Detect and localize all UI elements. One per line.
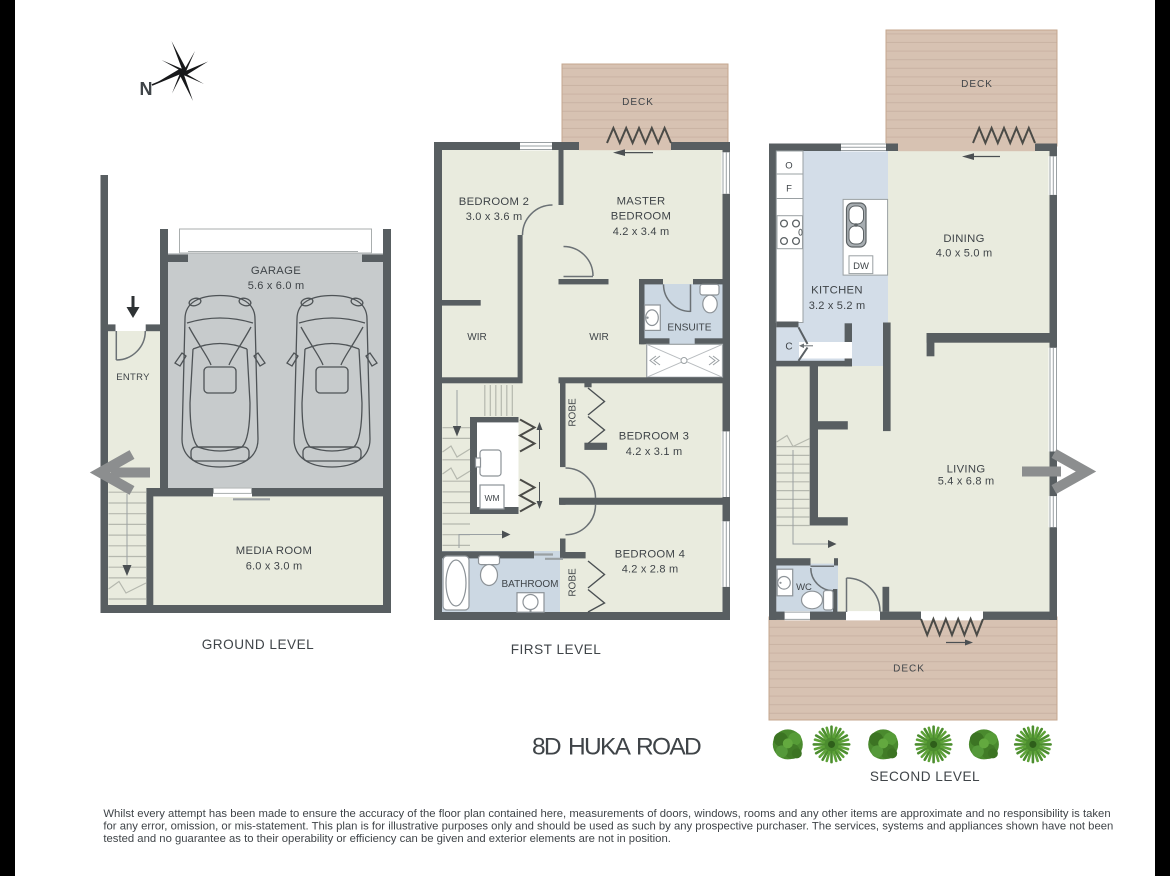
svg-text:6.0 x 3.0 m: 6.0 x 3.0 m [246, 561, 303, 573]
svg-text:WM: WM [484, 493, 499, 503]
svg-text:F: F [786, 184, 792, 195]
svg-text:8D HUKA ROAD: 8D HUKA ROAD [532, 734, 701, 761]
svg-text:4.2 x 3.1 m: 4.2 x 3.1 m [626, 446, 683, 458]
svg-text:MEDIA ROOM: MEDIA ROOM [236, 545, 312, 557]
svg-text:GROUND LEVEL: GROUND LEVEL [202, 637, 315, 652]
svg-text:3.2 x 5.2 m: 3.2 x 5.2 m [809, 300, 866, 312]
svg-text:N: N [140, 79, 153, 99]
svg-text:4.2 x 2.8 m: 4.2 x 2.8 m [622, 564, 679, 576]
svg-text:DECK: DECK [961, 79, 993, 90]
svg-text:BEDROOM 2: BEDROOM 2 [459, 196, 530, 208]
svg-text:ENTRY: ENTRY [116, 372, 150, 383]
svg-text:FIRST LEVEL: FIRST LEVEL [511, 642, 602, 657]
svg-text:DECK: DECK [893, 664, 925, 675]
svg-text:WIR: WIR [467, 332, 486, 343]
svg-text:WIR: WIR [589, 332, 608, 343]
svg-text:BEDROOM 4: BEDROOM 4 [615, 549, 686, 561]
svg-text:O: O [785, 161, 792, 172]
svg-text:BEDROOM: BEDROOM [611, 211, 671, 223]
svg-text:tested and no guarantee as to: tested and no guarantee as to their oper… [103, 833, 671, 845]
svg-text:SECOND LEVEL: SECOND LEVEL [870, 769, 980, 784]
svg-text:5.4 x 6.8 m: 5.4 x 6.8 m [938, 476, 995, 488]
svg-text:ROBE: ROBE [568, 568, 579, 597]
svg-text:LIVING: LIVING [947, 464, 986, 476]
svg-text:GARAGE: GARAGE [251, 265, 301, 277]
svg-text:ENSUITE: ENSUITE [667, 323, 711, 334]
svg-text:MASTER: MASTER [617, 196, 666, 208]
svg-text:BATHROOM: BATHROOM [501, 579, 558, 590]
svg-text:DECK: DECK [622, 97, 654, 108]
svg-text:5.6 x 6.0 m: 5.6 x 6.0 m [248, 280, 305, 292]
svg-text:4.0 x 5.0 m: 4.0 x 5.0 m [936, 248, 993, 260]
svg-text:Whilst every attempt has been: Whilst every attempt has been made to en… [103, 808, 1110, 820]
svg-text:DW: DW [853, 261, 869, 272]
svg-text:3.0 x 3.6 m: 3.0 x 3.6 m [466, 211, 523, 223]
svg-text:KITCHEN: KITCHEN [811, 285, 863, 297]
svg-text:4.2 x 3.4 m: 4.2 x 3.4 m [613, 226, 670, 238]
svg-text:for any error, omission, or mi: for any error, omission, or mis-statemen… [103, 821, 1113, 833]
svg-text:C: C [785, 342, 792, 353]
svg-text:BEDROOM 3: BEDROOM 3 [619, 431, 690, 443]
svg-text:DINING: DINING [943, 233, 984, 245]
svg-text:ROBE: ROBE [568, 398, 579, 427]
